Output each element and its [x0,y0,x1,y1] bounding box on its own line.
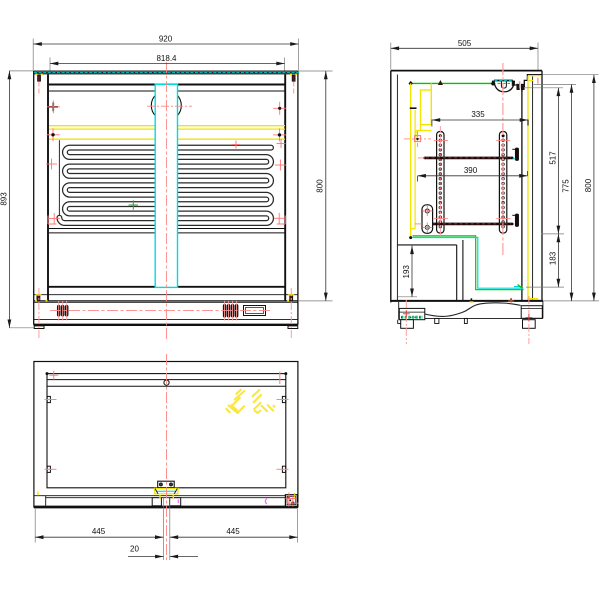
svg-text:193: 193 [402,265,411,279]
svg-text:517: 517 [548,151,557,165]
svg-text:800: 800 [315,179,324,193]
svg-text:335: 335 [471,110,485,119]
svg-text:893: 893 [0,192,9,206]
svg-text:800: 800 [584,178,593,192]
svg-text:445: 445 [92,527,106,536]
svg-text:818.4: 818.4 [156,54,177,63]
svg-text:445: 445 [226,527,240,536]
svg-text:390: 390 [464,166,478,175]
svg-text:920: 920 [159,35,173,44]
svg-text:20: 20 [130,545,139,554]
svg-text:505: 505 [458,39,472,48]
svg-text:775: 775 [561,179,570,193]
svg-text:183: 183 [548,251,557,265]
